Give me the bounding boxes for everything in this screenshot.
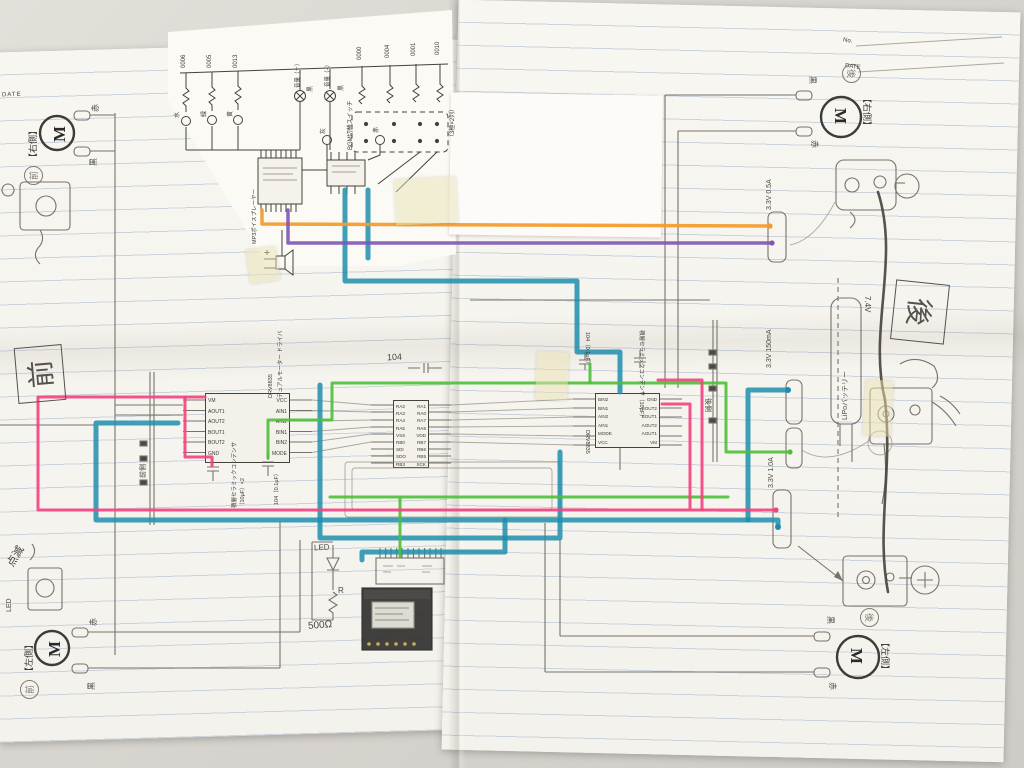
motor-side-label: 【右側】 — [861, 94, 874, 130]
front-box: 前 — [14, 344, 67, 404]
motor-symbol: M — [830, 108, 850, 124]
power-rating-mid: 3.3V 150mA — [766, 329, 773, 368]
power-rating-top: 3.3V 0.5A — [766, 179, 773, 210]
overlay-player-label: MP3ボイスプレーヤー — [250, 189, 258, 244]
led-note: LED — [6, 598, 13, 612]
driver-left-name: DRV8835 — [268, 374, 274, 398]
overlay-wire-color: 黄 — [225, 111, 234, 117]
overlay-switch-id: 0010 — [435, 42, 441, 55]
mlcc-value: （10μF）×2 — [238, 478, 246, 508]
wire-red-label: 赤 — [827, 682, 838, 690]
wire-red-label: 赤 — [88, 618, 99, 626]
motor-stamp: 前 — [20, 680, 39, 699]
overlay-switch-label: BGM切替スイッチ — [345, 100, 354, 150]
motor-side-label: 【左側】 — [22, 640, 35, 676]
overlay-transistor-label: 灰 — [318, 128, 327, 134]
overlay-volume-plus: 音量（＋） — [293, 60, 301, 88]
marker-wires — [38, 190, 793, 560]
motor-side-label: 【右側】 — [26, 126, 39, 162]
overlay-switch-id: 0001 — [411, 43, 417, 56]
wire-black-label: 黒 — [86, 682, 97, 690]
mlcc-label: 積層セラミックコンデンサ — [230, 442, 238, 508]
overlay-switch-id: 0000 — [357, 47, 363, 60]
rear-side-label: 後側 — [703, 398, 713, 412]
power-rating-bottom: 3.3V 1.0A — [768, 457, 775, 488]
led-label: LED — [314, 543, 330, 553]
wire-black-label: 黒 — [807, 76, 818, 84]
film-cap-label-right: 104（0.1μF） — [584, 332, 592, 366]
overlay-switch-note: （3極×2列） — [447, 106, 456, 140]
rear-box: 後 — [890, 279, 950, 344]
motor-symbol: M — [45, 641, 65, 657]
front-side-label: 前側 — [138, 464, 148, 478]
lipo-voltage: 7.4V — [863, 296, 872, 312]
motor-stamp: 後 — [860, 608, 879, 627]
overlay-resistor-id: 0006 — [181, 55, 187, 68]
lipo-label: LiPoバッテリー — [840, 371, 850, 420]
resistor-value: 500Ω — [308, 619, 333, 632]
masking-tape — [246, 246, 280, 284]
wire-black-label: 黒 — [88, 158, 99, 166]
overlay-transistor-label: 黒 — [336, 85, 345, 91]
mlcc-label-right: 積層セラミックコンデンサ（10μF） — [638, 330, 646, 420]
wire-black-label: 黒 — [825, 616, 836, 624]
film-cap-label: 104（0.1μF） — [272, 471, 280, 505]
overlay-resistor-id: 0005 — [207, 55, 213, 68]
overlay-switch-id: 0004 — [385, 45, 391, 58]
motor-symbol: M — [50, 126, 70, 142]
motor-side-label: 【左側】 — [879, 638, 892, 674]
left-page-date-header: DATE — [2, 92, 22, 99]
overlay-volume-minus: 音量（−） — [323, 62, 331, 87]
driver-left-subtitle: デュアルモーター ドライバ — [276, 331, 284, 398]
overlay-resistor-id: 0013 — [233, 55, 239, 68]
overlay-wire-color: 水 — [172, 112, 181, 118]
masking-tape — [535, 351, 569, 400]
overlay-wire-color: 緑 — [199, 111, 208, 117]
motor-stamp: 後 — [842, 64, 861, 83]
overlay-transistor-label: 黒 — [305, 86, 314, 92]
driver-right-name: DRV8835 — [584, 430, 590, 454]
overlay-transistor-label: 赤 — [371, 127, 380, 133]
motor-stamp: 前 — [24, 166, 43, 185]
motor-symbol: M — [846, 648, 866, 664]
resistor-r-label: R — [338, 586, 344, 595]
mcu-cap-note: 104 — [387, 352, 403, 363]
wire-red-label: 赤 — [90, 104, 101, 112]
photo-of-wiring-diagram: VMAOUT1AOUT2BOUT1BOUT2GND VCCAIN1AIN2BIN… — [0, 0, 1024, 768]
masking-tape — [863, 379, 894, 436]
masking-tape — [394, 176, 458, 225]
wire-red-label: 赤 — [809, 140, 820, 148]
right-page-no-header: No. — [843, 37, 853, 44]
